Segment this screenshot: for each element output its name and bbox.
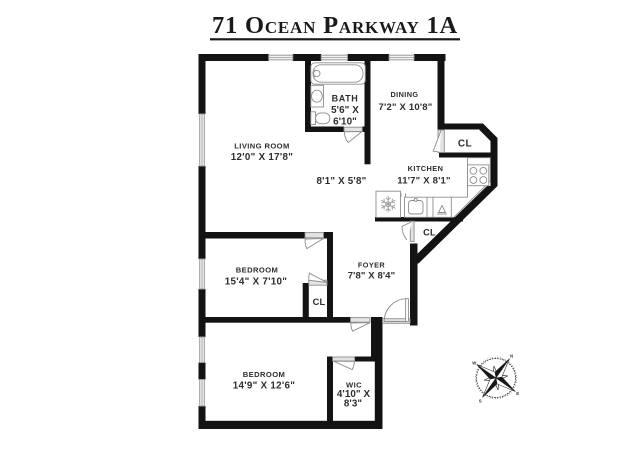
svg-text:BATH: BATH: [332, 94, 359, 104]
svg-text:11'7" X 8'1": 11'7" X 8'1": [397, 175, 450, 186]
svg-text:8'3": 8'3": [344, 399, 362, 410]
svg-text:FOYER: FOYER: [358, 261, 385, 270]
svg-text:5'6" X: 5'6" X: [331, 105, 359, 116]
svg-text:14'9" X 12'6": 14'9" X 12'6": [233, 380, 296, 391]
svg-text:LIVING ROOM: LIVING ROOM: [234, 142, 289, 151]
svg-text:71 Ocean Parkway 1A: 71 Ocean Parkway 1A: [212, 12, 458, 39]
svg-text:12'0" X 17'8": 12'0" X 17'8": [231, 152, 294, 163]
svg-text:S: S: [479, 399, 482, 404]
svg-text:CL: CL: [423, 228, 436, 238]
svg-text:WIC: WIC: [346, 380, 362, 389]
svg-text:BEDROOM: BEDROOM: [236, 266, 278, 275]
svg-text:15'4" X 7'10": 15'4" X 7'10": [225, 277, 288, 288]
svg-text:8'1" X 5'8": 8'1" X 5'8": [317, 176, 367, 187]
svg-text:N: N: [510, 353, 513, 358]
svg-text:KITCHEN: KITCHEN: [408, 164, 444, 173]
svg-text:CL: CL: [313, 297, 326, 307]
svg-text:7'8" X 8'4": 7'8" X 8'4": [348, 270, 395, 281]
svg-text:CL: CL: [458, 139, 472, 150]
svg-text:BEDROOM: BEDROOM: [243, 370, 285, 379]
svg-text:7'2" X 10'8": 7'2" X 10'8": [379, 102, 433, 113]
svg-text:E: E: [516, 391, 519, 396]
svg-text:DINING: DINING: [391, 90, 419, 99]
svg-text:6'10": 6'10": [333, 117, 357, 128]
